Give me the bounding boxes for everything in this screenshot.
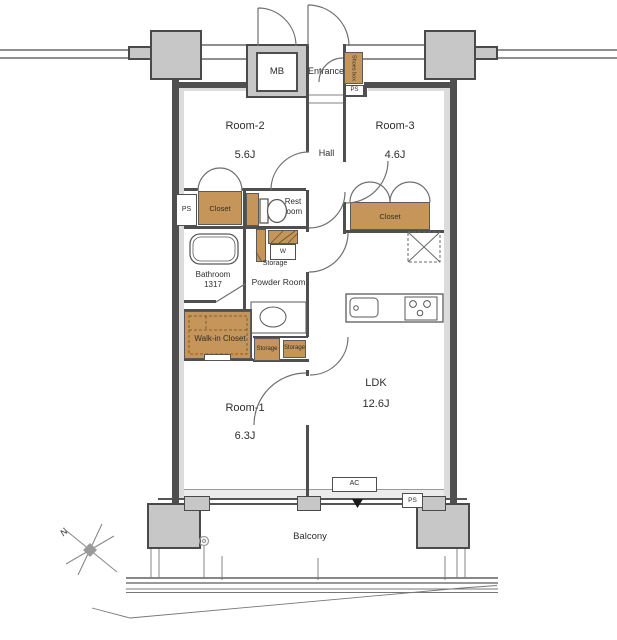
compass-icon	[63, 524, 117, 575]
fridge-space-icon	[408, 232, 440, 262]
toilet-tank	[260, 199, 268, 223]
walkin-dashes	[189, 316, 247, 354]
vanity-icon	[251, 302, 306, 333]
door-arc-room1	[254, 373, 306, 425]
toilet-icon	[268, 200, 287, 223]
stove-burner	[410, 301, 417, 308]
door-arc-mb	[258, 8, 296, 46]
stove-icon	[405, 297, 437, 320]
bathtub-inner	[193, 237, 235, 261]
vanity-basin	[260, 307, 286, 327]
door-arc-entrance-inner	[319, 58, 343, 82]
door-arc-restroom	[309, 192, 345, 228]
drain-icon-inner	[202, 539, 205, 542]
floor-plan: MB Entrance Shoes box PS PS Closet Close…	[0, 0, 617, 640]
bathroom-door	[216, 284, 245, 302]
folding-door-room3-closet	[350, 182, 430, 202]
boundary-line	[92, 586, 497, 619]
stove-burner	[417, 310, 423, 316]
entrance-step	[309, 95, 343, 103]
door-arc-entrance	[308, 5, 349, 46]
storage-leader	[256, 252, 262, 262]
stove-burner	[424, 301, 431, 308]
floorplan-linework	[0, 0, 617, 640]
folding-door-room2-closet	[198, 168, 242, 191]
door-arc-room2	[271, 152, 309, 190]
window-marker	[352, 499, 363, 508]
door-arc-powder-top	[309, 233, 348, 272]
shelf-hatch	[271, 231, 297, 243]
door-arc-powder-bottom	[310, 337, 348, 375]
sink-faucet	[354, 306, 359, 311]
railing-posts	[222, 556, 445, 580]
bathtub-icon	[190, 234, 238, 264]
pillar-drop-lines	[151, 549, 465, 578]
drain-icon	[200, 537, 209, 546]
